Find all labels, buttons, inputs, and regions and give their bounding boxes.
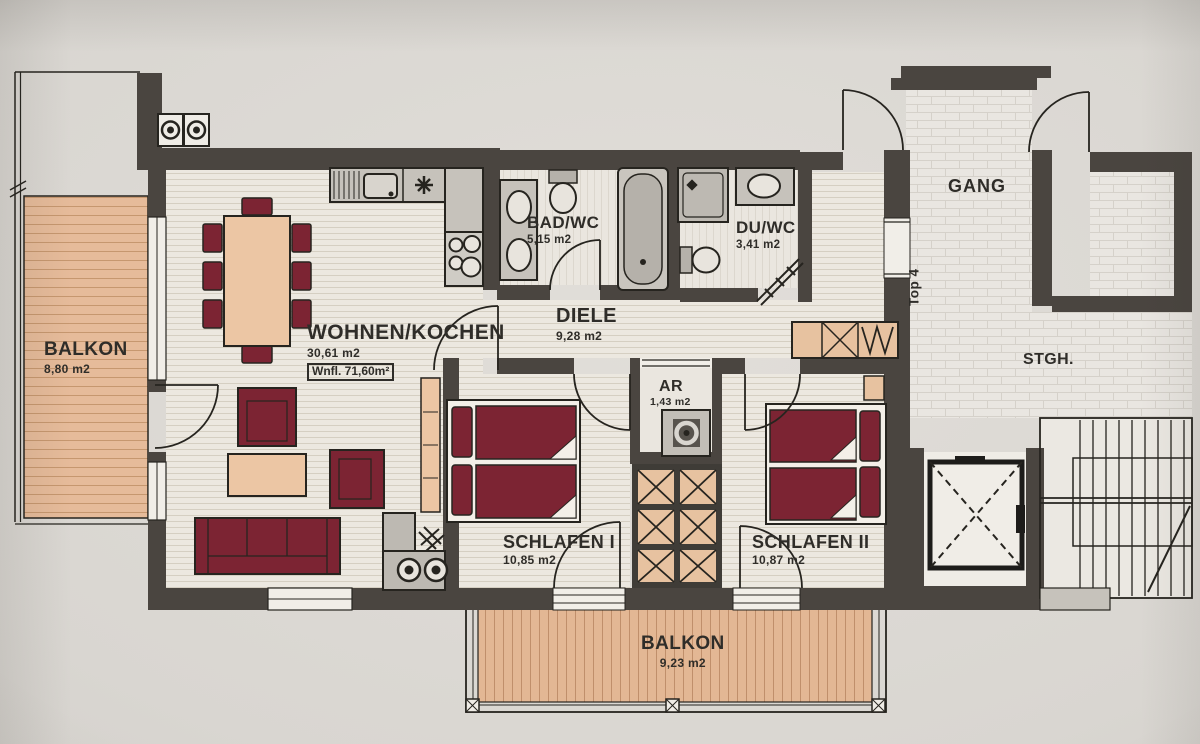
sofa (195, 518, 340, 574)
label-top4: Top 4 (908, 258, 923, 316)
dining-table (224, 216, 290, 346)
label-balkon-west: BALKON 8,80 m2 (44, 340, 128, 375)
label-gang: GANG (948, 177, 1006, 196)
elevator-car-icon (930, 462, 1022, 568)
floor-plan: BALKON 8,80 m2 WOHNEN/KOCHEN 30,61 m2 Wn… (0, 0, 1200, 744)
built-in-closet (632, 464, 722, 588)
label-wohnen-kochen: WOHNEN/KOCHEN 30,61 m2 Wnfl. 71,60m² (307, 322, 505, 381)
wnfl-box: Wnfl. 71,60m² (307, 363, 394, 381)
door-arc-gang-left (843, 90, 903, 150)
toilet-icon (693, 248, 720, 273)
boiler-icon (662, 410, 710, 456)
shower-icon (678, 168, 728, 222)
coffee-table (228, 454, 306, 496)
bed-schlafen-1 (447, 400, 580, 522)
sideboard (421, 378, 440, 512)
entry-wardrobe (792, 322, 898, 358)
washbasin-icon (748, 175, 780, 198)
label-balkon-sued: BALKON 9,23 m2 (641, 634, 725, 669)
label-du-wc: DU/WC 3,41 m2 (736, 219, 796, 252)
label-schlafen-2: SCHLAFEN II 10,87 m2 (752, 533, 869, 567)
label-stgh: STGH. (1023, 351, 1074, 368)
nightstand (864, 376, 884, 400)
label-ar: AR 1,43 m2 (650, 378, 691, 409)
label-bad-wc: BAD/WC 5,15 m2 (527, 214, 599, 247)
balcony-west (10, 72, 150, 524)
toilet-icon (550, 183, 576, 213)
vent-icon (158, 114, 209, 146)
floor-plan-drawing (0, 0, 1200, 744)
elevator (930, 456, 1025, 568)
label-schlafen-1: SCHLAFEN I 10,85 m2 (503, 533, 615, 567)
label-diele: DIELE 9,28 m2 (556, 306, 617, 343)
door-arc-gang-right (1029, 92, 1089, 152)
